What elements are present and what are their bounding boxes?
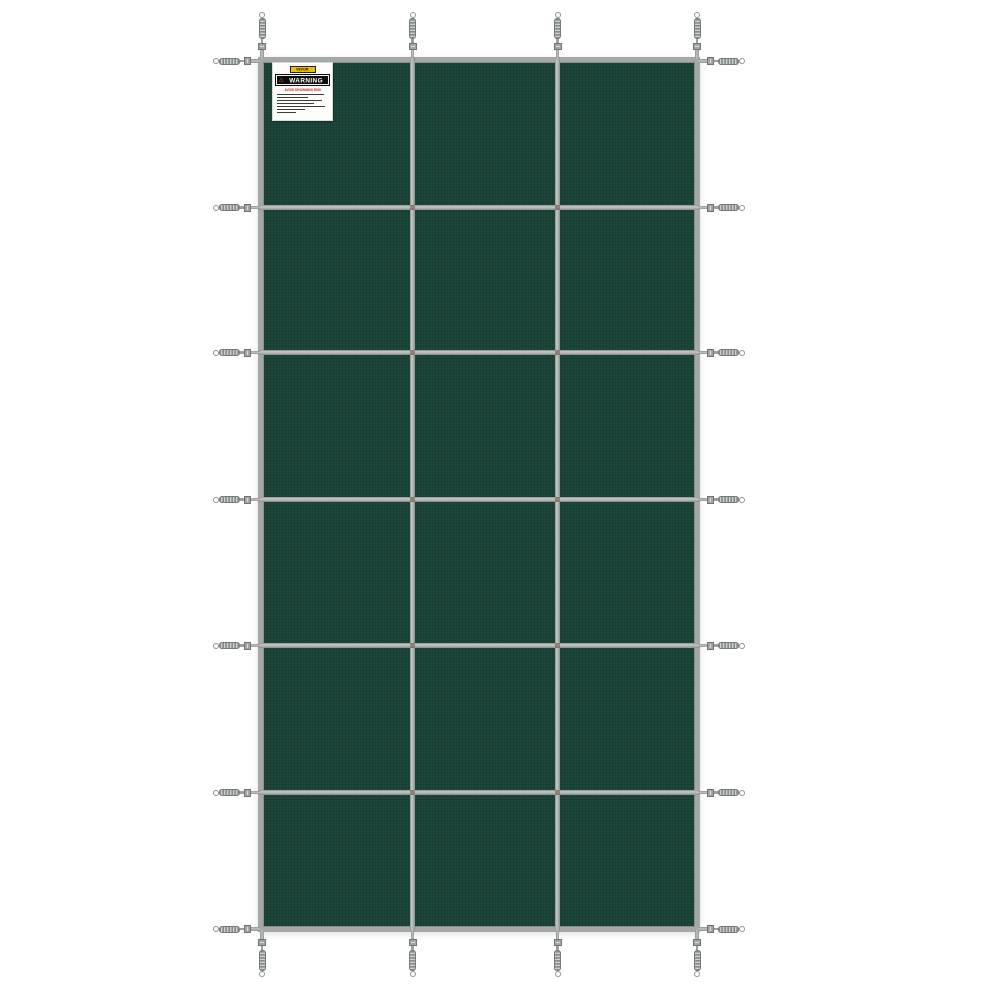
anchor-spring-assembly (258, 12, 267, 59)
anchor-spring-assembly (698, 203, 745, 212)
strap-buckle (707, 496, 714, 504)
strap-buckle (244, 789, 251, 797)
stitch-mark (555, 643, 560, 648)
strap-buckle (707, 204, 714, 212)
strap-end (411, 930, 415, 939)
anchor-spring-assembly (213, 495, 260, 504)
strap-buckle (409, 939, 417, 946)
grid-strap-vertical (555, 57, 560, 932)
spring-ring-icon (739, 790, 745, 796)
spring-coil (718, 58, 739, 65)
spring-coil (219, 642, 240, 649)
warning-fine-print (277, 94, 328, 115)
anchor-spring-assembly (258, 930, 267, 977)
anchor-spring-assembly (693, 930, 702, 977)
anchor-spring-assembly (698, 641, 745, 650)
strap-buckle (258, 939, 266, 946)
fine-print-line (277, 94, 324, 95)
anchor-spring-assembly (553, 930, 562, 977)
spring-coil (409, 950, 416, 971)
strap-end (251, 206, 260, 210)
strap-buckle (258, 43, 266, 50)
vevor-logo: VEVOR (290, 66, 316, 73)
anchor-spring-assembly (213, 348, 260, 357)
strap-buckle (707, 789, 714, 797)
anchor-spring-assembly (213, 788, 260, 797)
strap-buckle (244, 642, 251, 650)
spring-coil (718, 789, 739, 796)
strap-end (251, 59, 260, 63)
stitch-mark (410, 790, 415, 795)
fine-print-line (277, 100, 322, 101)
anchor-spring-assembly (553, 12, 562, 59)
strap-end (698, 351, 707, 355)
spring-coil (219, 926, 240, 933)
strap-buckle (244, 925, 251, 933)
anchor-spring-assembly (213, 925, 260, 934)
stitch-mark (555, 205, 560, 210)
strap-buckle (554, 43, 562, 50)
strap-end (260, 50, 264, 59)
spring-ring-icon (739, 497, 745, 503)
spring-coil (409, 18, 416, 39)
spring-coil (259, 18, 266, 39)
grid-strap-horizontal (258, 790, 700, 795)
spring-ring-icon (739, 350, 745, 356)
spring-ring-icon (739, 205, 745, 211)
spring-ring-icon (739, 58, 745, 64)
strap-buckle (244, 496, 251, 504)
cover-edge-trim (258, 57, 700, 932)
vevor-logo-text: VEVOR (296, 68, 308, 72)
spring-coil (718, 642, 739, 649)
stitch-mark (410, 350, 415, 355)
spring-coil (259, 950, 266, 971)
spring-coil (694, 950, 701, 971)
strap-end (698, 791, 707, 795)
anchor-spring-assembly (408, 12, 417, 59)
stitch-mark (410, 497, 415, 502)
strap-buckle (707, 642, 714, 650)
anchor-spring-assembly (698, 348, 745, 357)
fine-print-line (277, 103, 314, 104)
pool-safety-cover: VEVOR ⚠ WARNING AVOID DROWNING RISK (258, 57, 700, 932)
stitch-mark (555, 350, 560, 355)
spring-coil (219, 204, 240, 211)
strap-end (556, 50, 560, 59)
warning-label: VEVOR ⚠ WARNING AVOID DROWNING RISK (272, 62, 333, 121)
spring-ring-icon (410, 971, 416, 977)
fine-print-line (277, 106, 325, 107)
fine-print-line (277, 97, 307, 98)
spring-coil (554, 18, 561, 39)
spring-ring-icon (259, 971, 265, 977)
spring-ring-icon (555, 971, 561, 977)
strap-end (698, 927, 707, 931)
grid-strap-horizontal (258, 205, 700, 210)
spring-coil (718, 496, 739, 503)
stitch-mark (555, 790, 560, 795)
strap-buckle (707, 57, 714, 65)
fine-print-line (277, 112, 296, 113)
product-photo: VEVOR ⚠ WARNING AVOID DROWNING RISK (0, 0, 1000, 1000)
spring-coil (219, 496, 240, 503)
strap-end (698, 206, 707, 210)
strap-buckle (554, 939, 562, 946)
spring-ring-icon (694, 971, 700, 977)
strap-buckle (244, 57, 251, 65)
strap-end (251, 644, 260, 648)
anchor-spring-assembly (213, 203, 260, 212)
grid-strap-horizontal (258, 643, 700, 648)
anchor-spring-assembly (698, 788, 745, 797)
spring-coil (219, 789, 240, 796)
warning-triangle-icon: ⚠ (278, 77, 283, 83)
anchor-spring-assembly (693, 12, 702, 59)
fine-print-line (277, 109, 305, 110)
warning-heading: AVOID DROWNING RISK (273, 88, 332, 92)
strap-end (251, 791, 260, 795)
spring-ring-icon (739, 643, 745, 649)
strap-end (251, 927, 260, 931)
strap-buckle (244, 349, 251, 357)
grid-strap-vertical (410, 57, 415, 932)
spring-coil (219, 349, 240, 356)
spring-ring-icon (739, 926, 745, 932)
strap-end (698, 59, 707, 63)
anchor-spring-assembly (698, 57, 745, 66)
grid-strap-horizontal (258, 497, 700, 502)
warning-banner-text: WARNING (289, 76, 323, 83)
spring-coil (718, 349, 739, 356)
strap-end (556, 930, 560, 939)
spring-coil (718, 926, 739, 933)
spring-coil (554, 950, 561, 971)
stitch-mark (410, 205, 415, 210)
strap-buckle (693, 43, 701, 50)
spring-coil (219, 58, 240, 65)
spring-coil (694, 18, 701, 39)
strap-buckle (409, 43, 417, 50)
strap-end (698, 644, 707, 648)
strap-end (411, 50, 415, 59)
strap-buckle (693, 939, 701, 946)
strap-end (260, 930, 264, 939)
anchor-spring-assembly (213, 57, 260, 66)
strap-end (251, 498, 260, 502)
anchor-spring-assembly (698, 925, 745, 934)
spring-coil (718, 204, 739, 211)
strap-buckle (707, 349, 714, 357)
strap-buckle (244, 204, 251, 212)
anchor-spring-assembly (698, 495, 745, 504)
grid-strap-horizontal (258, 350, 700, 355)
strap-buckle (707, 925, 714, 933)
anchor-spring-assembly (213, 641, 260, 650)
strap-end (698, 498, 707, 502)
stitch-mark (555, 497, 560, 502)
warning-banner: ⚠ WARNING (276, 75, 329, 85)
anchor-spring-assembly (408, 930, 417, 977)
strap-end (251, 351, 260, 355)
stitch-mark (410, 643, 415, 648)
